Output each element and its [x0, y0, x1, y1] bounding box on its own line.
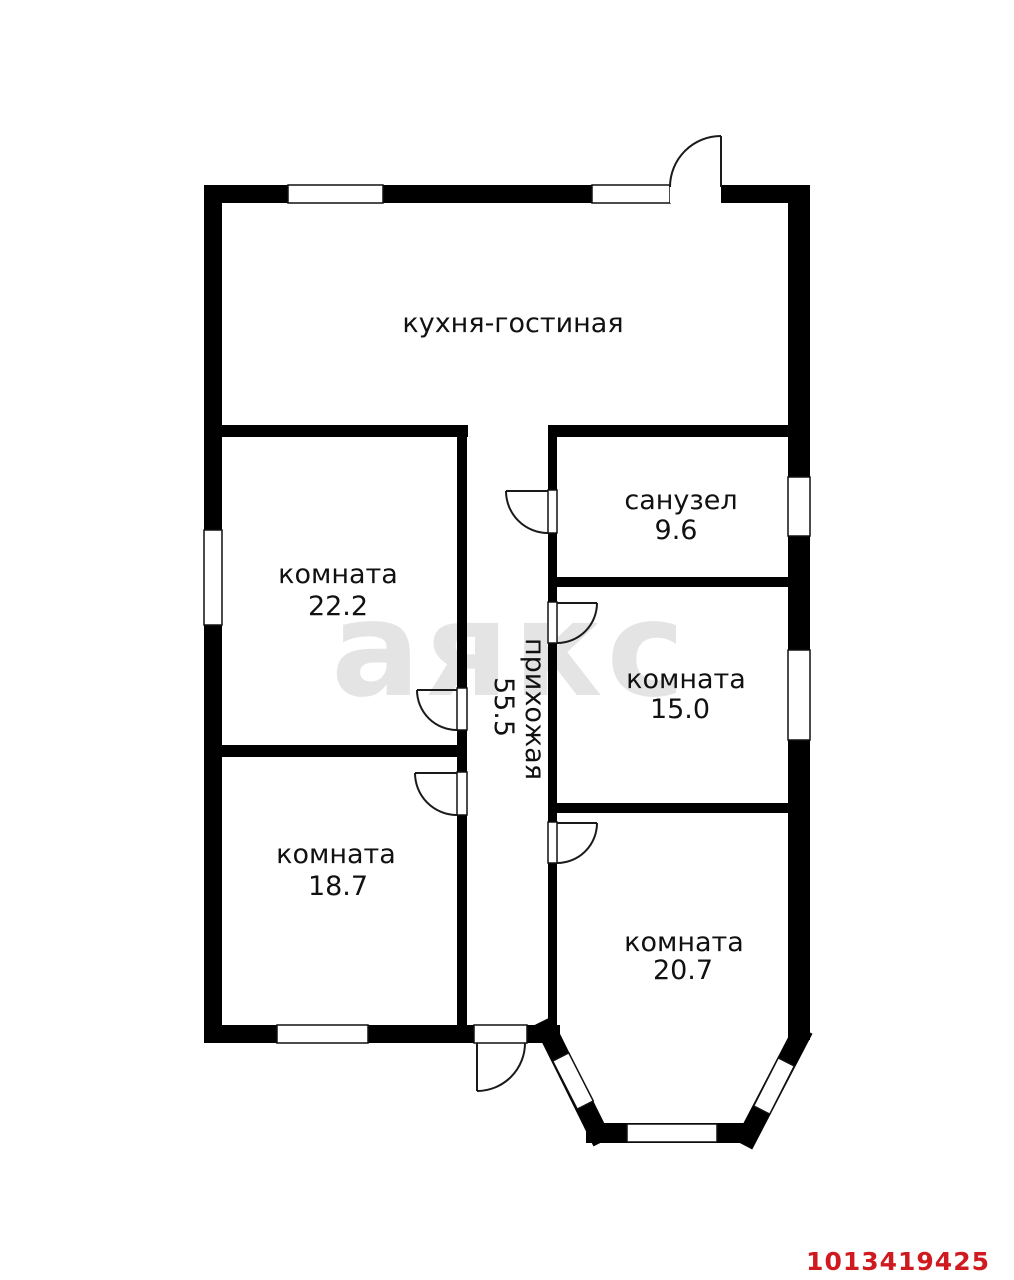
bathroom-door-frame	[548, 490, 557, 533]
window-left	[204, 530, 222, 625]
window-top-2	[592, 185, 670, 203]
window-bay-bottom	[627, 1124, 717, 1142]
floor-plan: аякс	[0, 0, 1014, 1280]
label-room3: комната	[276, 839, 396, 870]
label-room1: комната	[278, 559, 398, 590]
room2-door-frame	[548, 602, 557, 643]
window-bottom	[277, 1025, 368, 1043]
room3-door-frame	[457, 772, 467, 815]
wall-right	[788, 185, 810, 1040]
label-room2-area: 15.0	[650, 694, 710, 725]
room4-door-frame	[548, 822, 557, 863]
label-room1-area: 22.2	[308, 591, 368, 622]
label-room4-area: 20.7	[653, 955, 713, 986]
wall-corridor-left	[457, 437, 467, 1025]
label-room2: комната	[626, 664, 746, 695]
window-room2	[788, 650, 810, 740]
wall-kitchen-bottom-left	[222, 425, 468, 437]
label-kitchen: кухня-гостиная	[402, 308, 623, 339]
label-room4: комната	[624, 927, 744, 958]
exit-door-frame	[474, 1025, 527, 1043]
wall-room2-bottom	[548, 803, 788, 813]
window-bathroom	[788, 477, 810, 536]
label-bathroom: санузел	[624, 485, 737, 516]
room1-door-frame	[457, 688, 467, 730]
window-top-1	[288, 185, 383, 203]
wall-kitchen-bottom-right	[548, 425, 788, 437]
label-hallway-area: 55.5	[488, 677, 519, 737]
label-hallway: прихожая	[519, 638, 550, 780]
listing-id: 1013419425	[806, 1247, 990, 1276]
label-bathroom-area: 9.6	[655, 515, 698, 546]
wall-bathroom-bottom	[557, 577, 788, 587]
wall-room1-room3-divider	[222, 745, 467, 757]
entrance-door-opening	[670, 185, 721, 203]
label-room3-area: 18.7	[308, 871, 368, 902]
